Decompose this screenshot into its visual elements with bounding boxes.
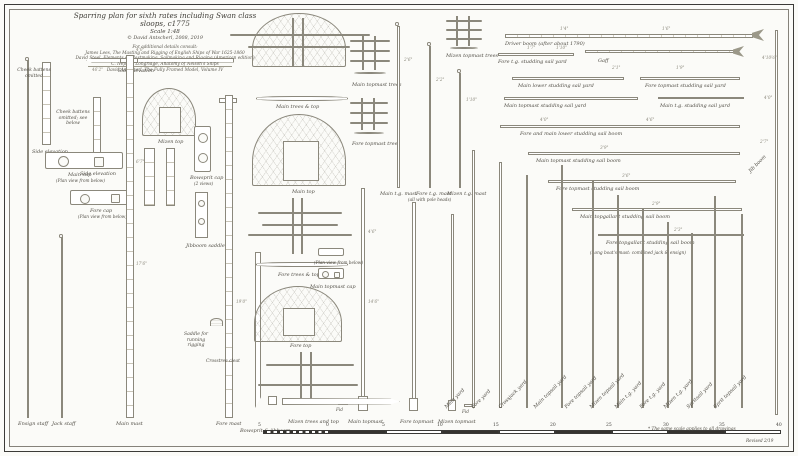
yard-drawing-4	[561, 165, 563, 408]
ftt-bar-1	[350, 102, 388, 104]
ztt-post-1	[456, 16, 458, 46]
ztt-bar-2	[446, 29, 482, 31]
bowsprit-cap-drawing	[194, 126, 211, 172]
fore-topmast-stun-boom-drawing	[548, 180, 736, 183]
fore-tg-truck	[427, 42, 431, 46]
fore-topmast-stun-yard-drawing	[640, 77, 740, 80]
main-topmast-stun-yard-label: Main topmast studding sail yard	[504, 103, 586, 109]
mizen-topmast-label: Mizen topmast	[438, 419, 476, 425]
mizen-topmast-drawing	[451, 214, 454, 402]
dim-d4: 19'0"	[236, 300, 247, 304]
yard-drawing-2	[499, 162, 502, 408]
main-tg-mast-drawing	[397, 26, 400, 188]
main-trees-label: Main trees & top	[276, 104, 319, 110]
top-front-crosstree-bar	[248, 46, 350, 48]
fore-tg-stun-boom-drawing	[598, 234, 744, 236]
scale-num-5: 20	[550, 423, 556, 428]
dim-d1: 4'0"	[136, 48, 144, 52]
main-topmast-label: Main topmast	[348, 419, 383, 425]
longboat-mast-note: (Long boat's mast: combined jack & ensig…	[590, 251, 686, 256]
main-topmast-trees-label: Main topmast trees	[352, 82, 402, 88]
main-lower-stun-yard-label: Main lower studding sail yard	[518, 83, 594, 89]
fish-dimension-line	[88, 66, 232, 67]
bowsprit-cap-hole-1	[198, 133, 208, 143]
bowsprit-cap-views-note: (2 views)	[194, 181, 213, 186]
main-cap-round-hole	[58, 156, 69, 167]
fore-tg-stun-yard-label: Fore t.g. studding sail yard	[498, 59, 567, 65]
saddle-drawing	[210, 318, 223, 326]
topmast-cap-side-view	[318, 248, 344, 256]
ensign-staff-label: Ensign staff	[18, 421, 48, 427]
fore-mast-label: Fore mast	[216, 421, 241, 427]
fore-cap-round-hole	[80, 194, 90, 204]
mizen-tg-truck	[457, 69, 461, 73]
fore-front-post-2	[301, 198, 303, 254]
fore-topmast-trees-label: Fore topmast trees	[352, 141, 400, 147]
fore-topmast-drawing	[412, 202, 416, 400]
main-topmast-stun-boom-drawing	[528, 152, 740, 155]
fore-topmast-heel	[409, 398, 418, 411]
scale-num-4: 15	[493, 423, 499, 428]
scale-seg-3	[442, 430, 499, 434]
dim-d5: 2'6"	[404, 58, 412, 62]
mizen-top-label: Mizen top	[158, 139, 183, 145]
scale-num-2: 5	[382, 423, 385, 428]
scale-num-1: 0	[326, 423, 329, 428]
dim-d14: 4'0"	[540, 118, 548, 122]
jibboom-saddle-drawing	[195, 192, 208, 238]
side-elevation-label-3: Side elevation	[118, 68, 154, 74]
ensign-staff-drawing	[27, 60, 29, 418]
lower-front-bar-2	[258, 384, 358, 386]
masthead-detail-3	[144, 148, 155, 206]
revision-note: Revised 2/19	[746, 438, 773, 443]
main-tg-stun-yard-drawing	[658, 97, 744, 99]
main-tg-stun-yard-label: Main t.g. studding sail yard	[660, 103, 730, 109]
dim-d6: 2'2"	[436, 78, 444, 82]
scale-num-9: 40	[776, 423, 782, 428]
fore-topmast-stun-boom-label: Fore topmast studding sail boom	[556, 186, 639, 192]
dim-d23: 1'4"	[560, 27, 568, 31]
top-front-post-1	[292, 18, 294, 66]
dim-d19: 2'3"	[674, 228, 682, 232]
topmast-cap-round-hole	[322, 271, 329, 278]
scale-seg-5	[555, 430, 612, 434]
lower-stun-boom-drawing	[500, 125, 740, 128]
fore-tg-stun-yard-drawing	[498, 53, 574, 56]
page-title: Sparring plan for sixth rates including …	[62, 12, 268, 29]
bowsprit-block	[268, 396, 277, 405]
fore-tg-mast-drawing	[429, 46, 431, 188]
jibboom-saddle-hole-1	[198, 200, 205, 207]
mizen-topmast-trees-label: Mizen topmast trees	[446, 53, 498, 59]
main-cap-square-hole	[94, 157, 104, 167]
fore-top-hole	[283, 308, 315, 336]
dim-d16: 3'9"	[600, 146, 608, 150]
main-trees-strip	[256, 96, 348, 101]
ztt-bar-3	[446, 38, 482, 40]
fore-cap-drawing	[70, 190, 134, 205]
lower-front-post-1	[300, 352, 302, 402]
driver-boom-label: Driver boom (after about 1790)	[505, 41, 585, 47]
main-topmast-stun-boom-label: Main topmast studding sail boom	[536, 158, 621, 164]
bowsprit-cap-hole-2	[198, 153, 208, 163]
masthead-detail-4	[166, 148, 175, 206]
dim-d20: 4'10½"	[762, 56, 777, 60]
jibboom-saddle-label: Jibboom saddle	[186, 243, 225, 249]
fore-trees-label: Fore trees & top	[278, 272, 320, 278]
fish-side-elevation-drawing	[86, 58, 234, 63]
gaff-label: Gaff	[598, 58, 609, 64]
fore-front-bar-3	[248, 234, 352, 236]
dim-d21: 4'0"	[764, 96, 772, 100]
mtt-bar-3	[350, 60, 390, 62]
dim-d10: 1'7"	[527, 46, 535, 50]
gaff-drawing	[585, 50, 735, 53]
lower-front-bar-1	[266, 364, 354, 366]
top-front-yard-bar	[230, 34, 370, 36]
yard-drawing-7	[642, 208, 644, 408]
lower-stun-boom-label: Fore and main lower studding sail boom	[520, 131, 622, 137]
cheek-battens-note: Cheek battens omitted	[14, 68, 54, 79]
dim-d18: 2'9"	[652, 202, 660, 206]
main-lower-stun-yard-drawing	[512, 77, 624, 80]
ztt-post-2	[468, 16, 470, 46]
dim-d12: 2'1"	[612, 66, 620, 70]
scale-seg-1	[329, 430, 386, 434]
mizen-trees-top-label: Mizen trees and top	[288, 419, 339, 425]
dim-d9: 14'6"	[368, 300, 379, 304]
dim-d11: 1'10"	[556, 46, 567, 50]
scale-footnote: * The same scale applies to all drawings	[648, 427, 736, 432]
mizen-top-hole	[159, 107, 181, 133]
dim-d22: 2'7"	[760, 140, 768, 144]
dim-d17: 3'6"	[622, 174, 630, 178]
mtt-post-2	[374, 36, 376, 70]
jibboom-saddle-hole-2	[198, 218, 205, 225]
fore-topmast-stun-yard-label: Fore topmast studding sail yard	[645, 83, 726, 89]
main-mast-label: Main mast	[116, 421, 143, 427]
driver-boom-drawing	[505, 34, 753, 38]
fid-label-1: Fid	[336, 407, 343, 412]
yard-drawing-1	[472, 150, 475, 408]
main-topmast-drawing	[361, 188, 365, 398]
ftt-post-1	[361, 98, 363, 130]
dim-d8: 4'6"	[368, 230, 376, 234]
jack-staff-drawing	[61, 237, 63, 418]
ftt-bar-2	[350, 112, 388, 114]
lower-front-post-2	[310, 352, 312, 402]
jib-boom-drawing	[775, 30, 778, 415]
topmast-cap-square-hole	[334, 272, 340, 278]
main-tg-stun-boom-drawing	[572, 208, 742, 211]
title-block: Sparring plan for sixth rates including …	[62, 12, 268, 74]
fore-mast-drawing	[225, 95, 233, 418]
main-top-label: Main top	[292, 189, 315, 195]
yard-drawing-3	[526, 175, 528, 408]
fore-topmast-label: Fore topmast	[400, 419, 434, 425]
fore-top-label: Fore top	[290, 343, 311, 349]
mtt-post-1	[362, 36, 364, 70]
top-front-post-2	[302, 18, 304, 66]
main-cap-drawing	[45, 152, 123, 169]
topmast-cap-plan-note: (Plan view from below)	[314, 260, 363, 265]
ftt-bar-3	[350, 122, 388, 124]
fore-front-bar-2	[262, 224, 338, 226]
yard-drawing-10	[714, 196, 716, 408]
author-line: © David Antscherl, 2008, 2019	[62, 36, 268, 42]
scale-seg-2	[386, 430, 443, 434]
dim-d15: 4'6"	[646, 118, 654, 122]
jack-staff-label: Jack staff	[52, 421, 76, 427]
scale-num-3: 10	[437, 423, 443, 428]
topmast-cap-plan-view	[318, 268, 344, 279]
yard-drawing-8	[667, 222, 669, 408]
fore-cap-plan-note: (Plan view from below)	[78, 214, 127, 219]
yard-drawing-5	[592, 180, 594, 408]
fore-cap-square-hole	[111, 194, 120, 203]
fore-tg-stun-boom-label: Fore topgallant studding sail boom	[606, 240, 695, 246]
main-mast-drawing	[126, 55, 134, 418]
scale-num-0: 5	[258, 423, 261, 428]
main-tg-truck	[395, 22, 399, 26]
mizen-tg-mast-label: Mizen t.g. mast	[447, 191, 486, 197]
fid-label-2: Fid	[462, 409, 469, 414]
mizen-tg-mast-drawing	[459, 73, 461, 188]
main-topmast-cap-label: Main topmast cap	[310, 284, 356, 290]
dim-d7: 1'10"	[466, 98, 477, 102]
fore-front-bar-1	[258, 212, 342, 214]
fish-length-dim: 46'2"	[92, 68, 103, 72]
mtt-bar-1	[350, 40, 390, 42]
scale-num-6: 25	[606, 423, 612, 428]
fore-front-post-1	[292, 198, 294, 254]
ztt-bar-1	[446, 20, 482, 22]
dim-d3: 17'6"	[136, 262, 147, 266]
scale-bar-fine-section	[263, 430, 329, 434]
main-cap-plan-note: (Plan view from below)	[56, 178, 105, 183]
sparring-plan-sheet: Sparring plan for sixth rates including …	[0, 0, 798, 456]
saddle-label: Saddle for running rigging	[178, 332, 214, 349]
dim-d13: 1'9"	[676, 66, 684, 70]
ftt-post-2	[373, 98, 375, 130]
main-top-hole	[283, 141, 319, 181]
main-topmast-stun-yard-drawing	[504, 97, 638, 100]
scale-seg-4	[499, 430, 556, 434]
mizen-trees-top-drawing	[282, 398, 400, 405]
cleat-label: Crosstree cleat	[206, 359, 240, 365]
dim-d24: 1'6"	[662, 27, 670, 31]
cheek-battens-note-2: Cheek battens omitted; see below	[56, 110, 90, 127]
mtt-bar-2	[350, 50, 390, 52]
